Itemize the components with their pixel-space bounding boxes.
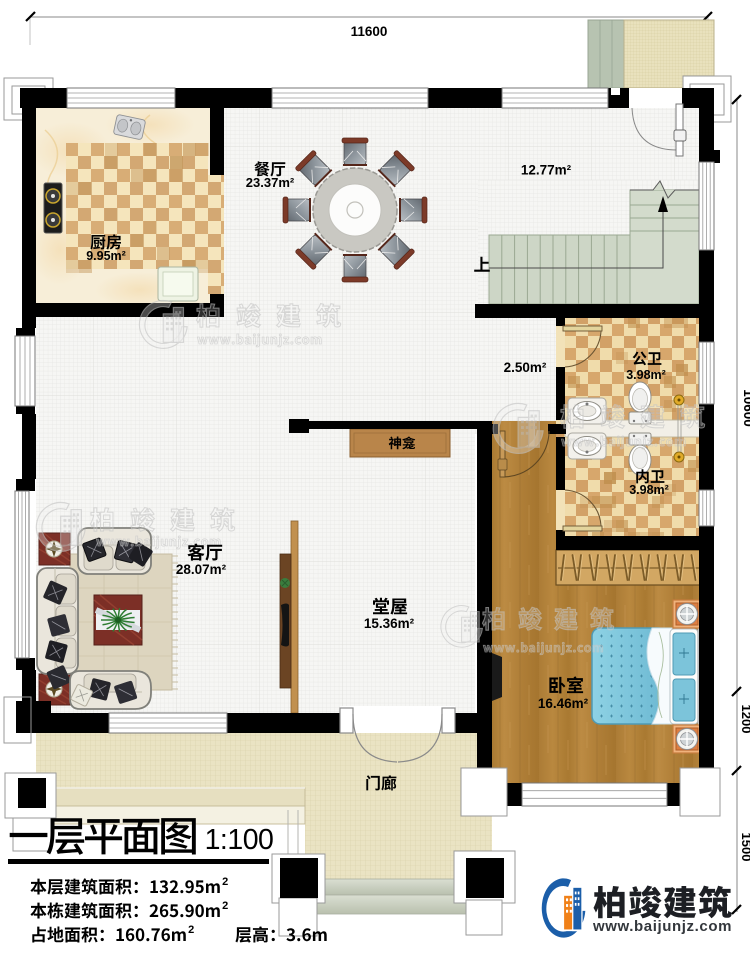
svg-text:15.36m²: 15.36m²: [364, 616, 415, 631]
svg-text:28.07m²: 28.07m²: [176, 562, 227, 577]
svg-text:2: 2: [222, 876, 228, 888]
svg-text:10600: 10600: [741, 389, 750, 427]
svg-text:3.98m²: 3.98m²: [629, 483, 669, 497]
svg-text:3.98m²: 3.98m²: [626, 368, 666, 382]
svg-text:23.37m²: 23.37m²: [246, 175, 295, 190]
svg-text:www.baijunjz.com: www.baijunjz.com: [592, 918, 732, 935]
svg-text:1500: 1500: [739, 833, 750, 862]
svg-text:9.95m²: 9.95m²: [86, 249, 126, 263]
svg-text:12.77m²: 12.77m²: [521, 163, 572, 178]
svg-text:2: 2: [188, 924, 194, 936]
svg-text:16.46m²: 16.46m²: [538, 696, 589, 711]
svg-text:1200: 1200: [739, 705, 750, 734]
svg-text:11600: 11600: [351, 24, 388, 39]
svg-text:2.50m²: 2.50m²: [504, 360, 547, 375]
svg-text:2: 2: [222, 900, 228, 912]
svg-text:1:100: 1:100: [205, 824, 274, 856]
